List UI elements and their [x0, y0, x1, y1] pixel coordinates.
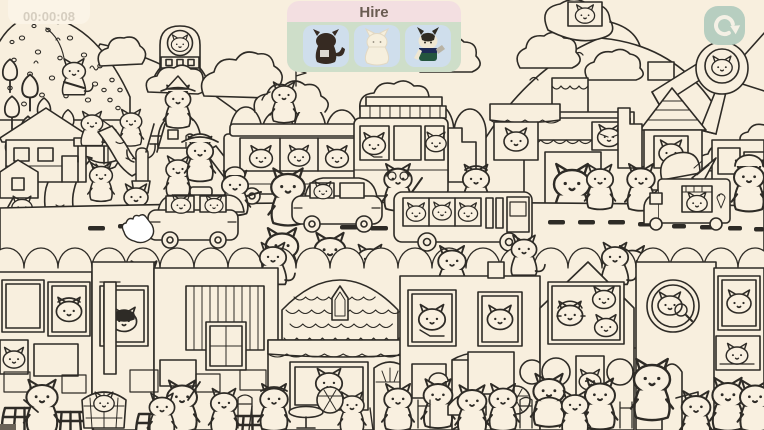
svg-text:00:00:08: 00:00:08 — [23, 9, 75, 24]
svg-text:Hire: Hire — [359, 4, 388, 21]
